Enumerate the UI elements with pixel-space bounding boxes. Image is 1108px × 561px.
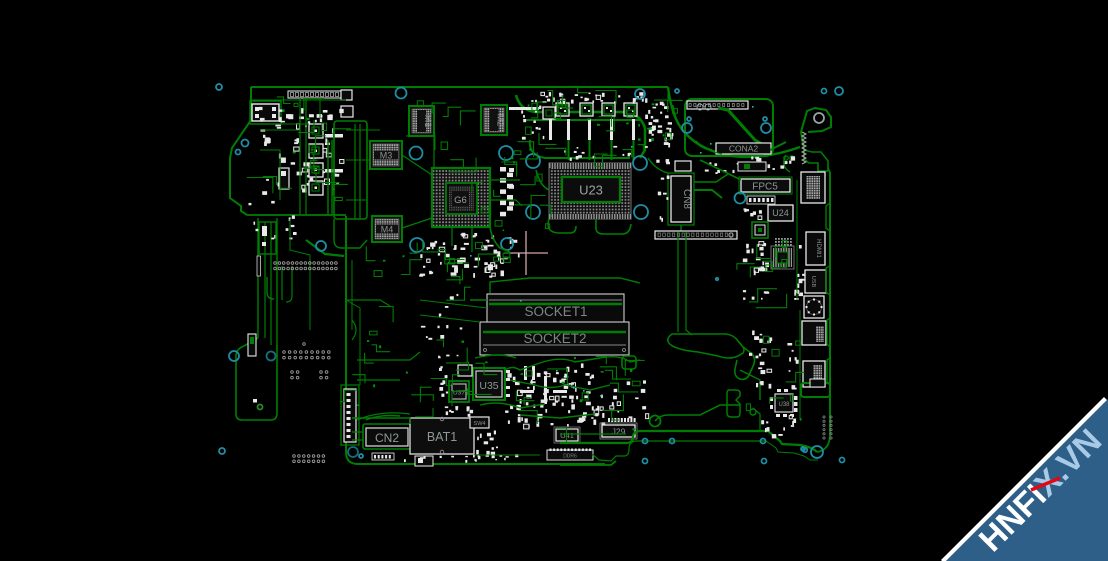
svg-text:M2: M2 bbox=[496, 114, 506, 127]
svg-text:M4: M4 bbox=[381, 225, 394, 235]
svg-text:U23: U23 bbox=[579, 183, 603, 198]
svg-text:DDR6: DDR6 bbox=[563, 454, 577, 460]
svg-text:HDMI1: HDMI1 bbox=[815, 239, 821, 258]
svg-text:U35: U35 bbox=[479, 380, 498, 392]
svg-text:CN2: CN2 bbox=[375, 431, 399, 445]
svg-text:U37: U37 bbox=[453, 390, 465, 397]
svg-text:G6: G6 bbox=[454, 195, 467, 206]
svg-text:SOCKET2: SOCKET2 bbox=[523, 331, 586, 346]
svg-text:USB: USB bbox=[810, 276, 816, 288]
svg-text:U38: U38 bbox=[778, 402, 790, 408]
svg-text:BAT1: BAT1 bbox=[427, 430, 457, 444]
svg-text:M1: M1 bbox=[423, 115, 433, 128]
svg-text:U24: U24 bbox=[772, 208, 789, 218]
svg-text:FPC5: FPC5 bbox=[752, 182, 778, 193]
svg-text:CONA2: CONA2 bbox=[729, 144, 759, 154]
svg-text:J29: J29 bbox=[612, 427, 626, 437]
svg-text:CN8: CN8 bbox=[681, 189, 692, 209]
svg-text:SW4: SW4 bbox=[474, 421, 486, 427]
svg-text:SOCKET1: SOCKET1 bbox=[524, 304, 587, 319]
svg-text:M3: M3 bbox=[380, 151, 393, 161]
